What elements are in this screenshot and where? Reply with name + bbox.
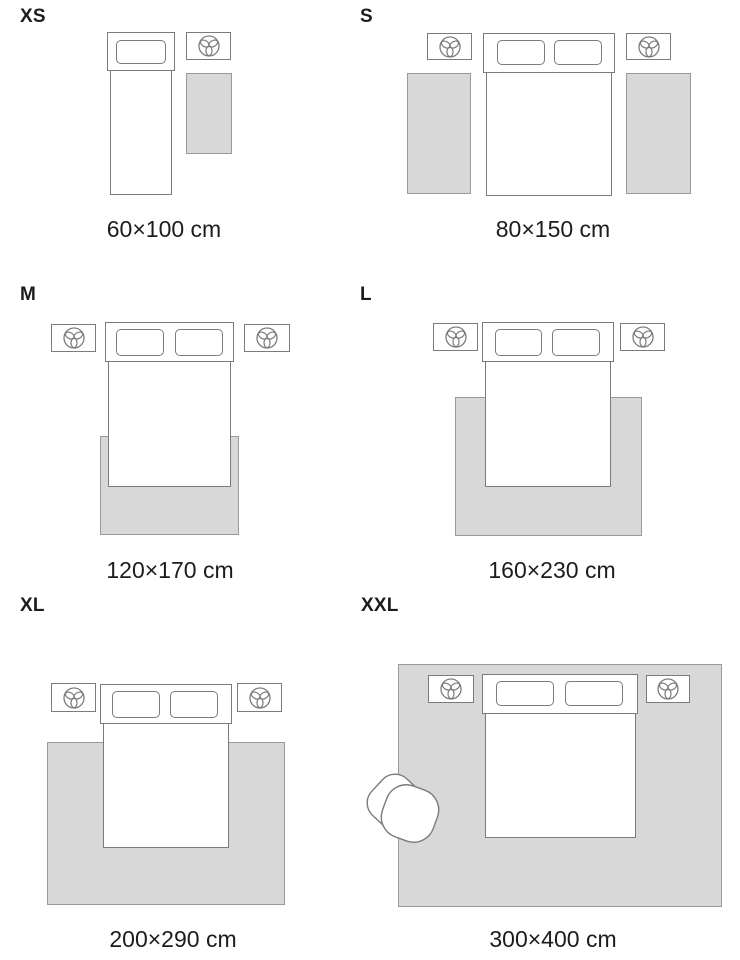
bed-mattress: [110, 70, 172, 195]
nightstand-right: [646, 675, 690, 703]
rug-size-label: 200×290 cm: [33, 926, 313, 952]
nightstand-right: [620, 323, 665, 351]
rug-size-guide-diagram: XS 60×100 cm S 80×150 cm: [0, 0, 740, 960]
bed-mattress: [485, 361, 611, 487]
nightstand: [186, 32, 231, 60]
rug-size-label: 160×230 cm: [412, 557, 692, 583]
pillow: [116, 40, 166, 64]
pillow-left: [112, 691, 160, 718]
nightstand-left: [433, 323, 478, 351]
bed-mattress: [103, 723, 229, 848]
rug-size-label: 80×150 cm: [413, 216, 693, 242]
rug-size-label: 60×100 cm: [24, 216, 304, 242]
plant-icon: [443, 325, 469, 349]
size-category-label: XS: [20, 6, 46, 28]
rug: [186, 73, 232, 154]
size-category-label: XXL: [361, 595, 399, 617]
plant-icon: [61, 326, 87, 350]
nightstand-left: [427, 33, 472, 60]
plant-icon: [196, 34, 222, 58]
nightstand-right: [237, 683, 282, 712]
nightstand-left: [51, 324, 96, 352]
plant-icon: [636, 35, 662, 59]
bed-mattress: [485, 713, 636, 838]
pillow-left: [495, 329, 542, 356]
rug-right: [626, 73, 691, 194]
rug-left: [407, 73, 471, 194]
nightstand-right: [626, 33, 671, 60]
rug-size-label: 300×400 cm: [413, 926, 693, 952]
pillow-left: [116, 329, 164, 356]
plant-icon: [61, 686, 87, 710]
pillow-left: [496, 681, 554, 706]
panel-l: L 160×230 cm: [355, 280, 740, 595]
panel-s: S 80×150 cm: [355, 0, 740, 260]
pillow-right: [170, 691, 218, 718]
plant-icon: [247, 686, 273, 710]
size-category-label: S: [360, 6, 373, 28]
pillow-right: [565, 681, 623, 706]
armchair: [359, 764, 447, 850]
plant-icon: [630, 325, 656, 349]
pillow-right: [554, 40, 602, 65]
bed-mattress: [108, 361, 231, 487]
size-category-label: XL: [20, 595, 45, 617]
size-category-label: M: [20, 284, 36, 306]
plant-icon: [438, 677, 464, 701]
panel-xs: XS 60×100 cm: [0, 0, 340, 260]
plant-icon: [655, 677, 681, 701]
size-category-label: L: [360, 284, 372, 306]
panel-xl: XL 200×290 cm: [0, 590, 355, 960]
nightstand-left: [428, 675, 474, 703]
panel-xxl: XXL 300×400 cm: [355, 590, 740, 960]
plant-icon: [437, 35, 463, 59]
plant-icon: [254, 326, 280, 350]
nightstand-left: [51, 683, 96, 712]
panel-m: M 120×170 cm: [0, 280, 355, 595]
nightstand-right: [244, 324, 290, 352]
bed-mattress: [486, 72, 612, 196]
pillow-right: [552, 329, 600, 356]
rug-size-label: 120×170 cm: [30, 557, 310, 583]
pillow-right: [175, 329, 223, 356]
pillow-left: [497, 40, 545, 65]
